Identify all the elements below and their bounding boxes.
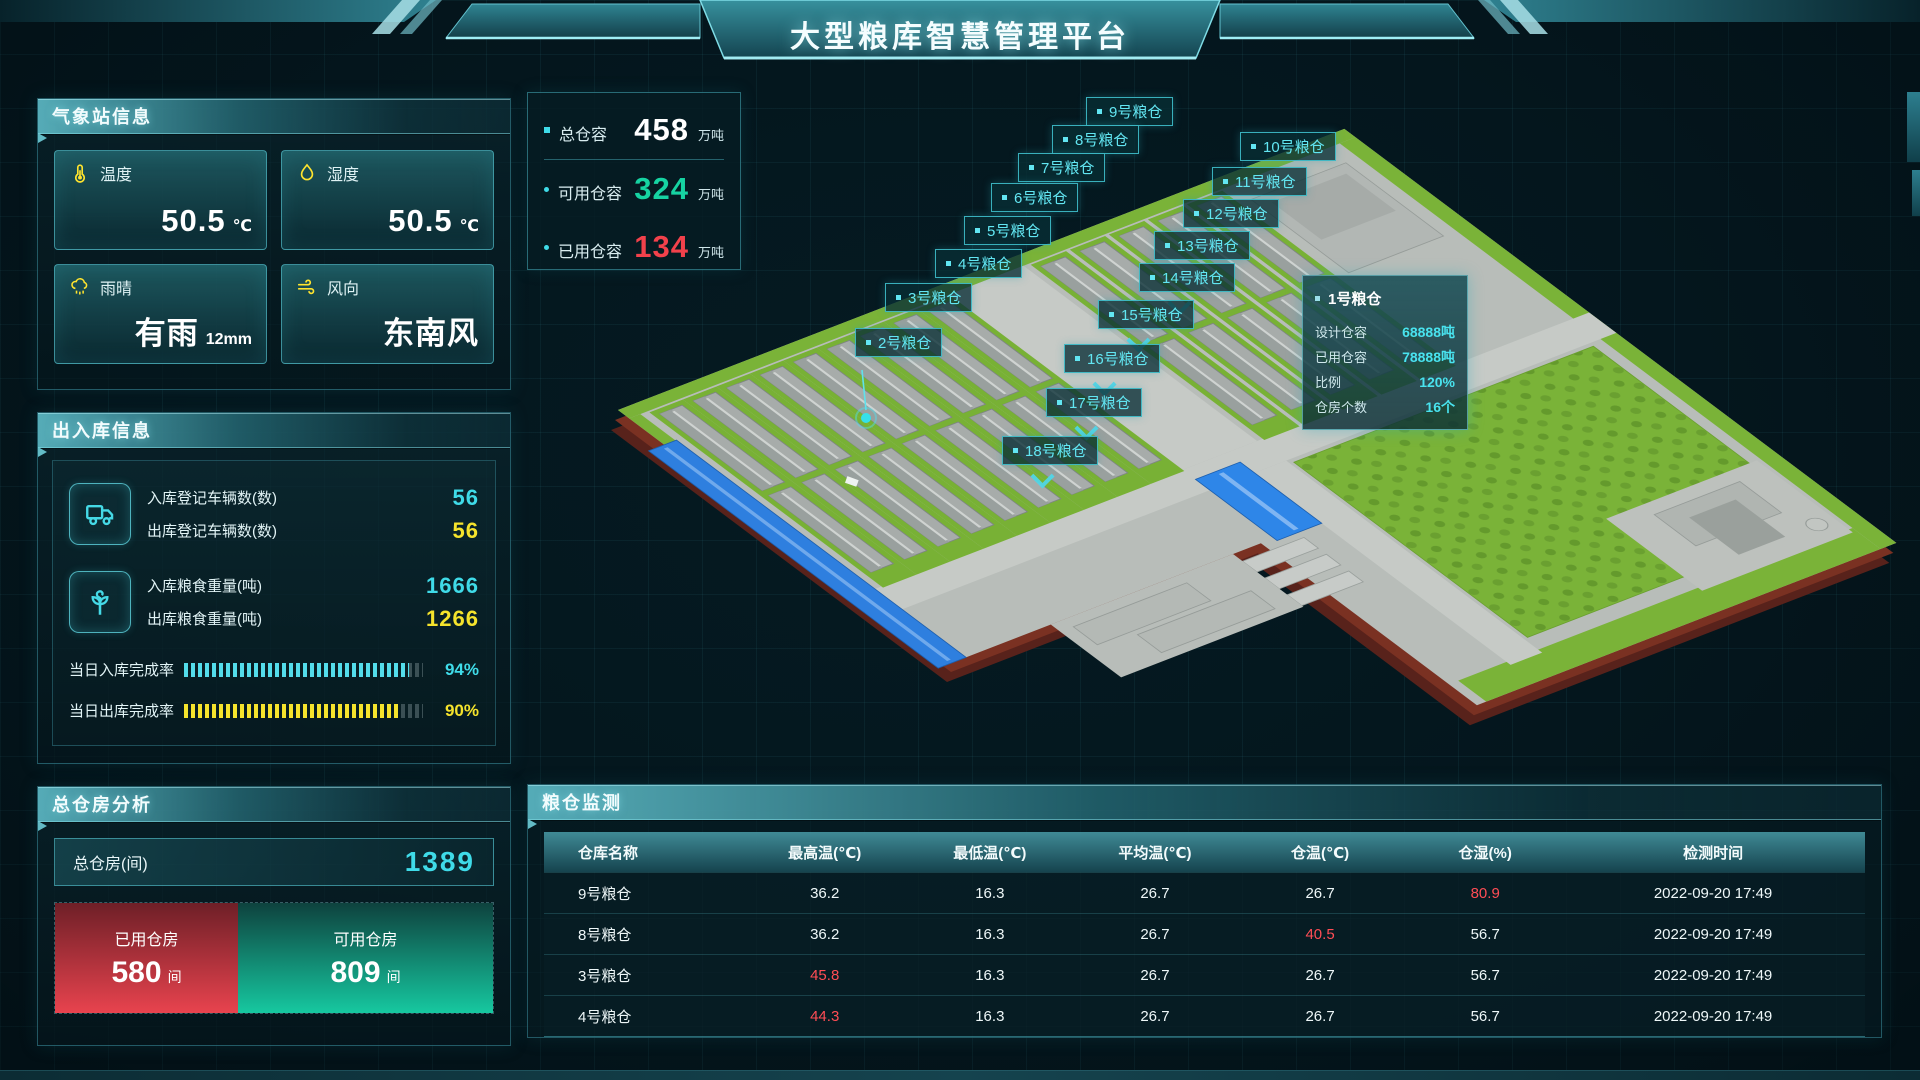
inout-rows: 入库登记车辆数(数) 56 出库登记车辆数(数) 56	[147, 484, 479, 544]
map-label-15号粮仓[interactable]: 15号粮仓	[1098, 300, 1194, 329]
monitor-cell: 16.3	[907, 926, 1072, 943]
tooltip-row-label: 已用仓容	[1315, 347, 1367, 366]
bullet-icon	[946, 261, 951, 266]
weather-card-value: 东南风	[383, 308, 479, 353]
monitor-col-header: 最低温(℃)	[907, 842, 1072, 863]
monitor-cell: 40.5	[1238, 926, 1403, 943]
capacity-label: 总仓容	[559, 121, 607, 145]
total-rooms-label: 总仓房(间)	[73, 850, 148, 874]
weather-panel: 气象站信息 温度 50.5℃湿度 50.5℃雨晴 有雨12mm风向 东南风	[37, 98, 511, 390]
capacity-unit: 万吨	[698, 242, 724, 261]
map-label-10号粮仓[interactable]: 10号粮仓	[1240, 132, 1336, 161]
weather-card-风向: 风向 东南风	[281, 264, 494, 364]
monitor-panel-title: 粮仓监测	[542, 789, 622, 815]
map-label-17号粮仓[interactable]: 17号粮仓	[1046, 388, 1142, 417]
monitor-cell: 45.8	[742, 967, 907, 984]
wind-icon	[296, 276, 318, 298]
inout-row-value: 1266	[426, 606, 479, 632]
available-rooms-segment: 可用仓房 809间	[238, 903, 493, 1013]
completion-rate-row: 当日出库完成率 90%	[69, 700, 479, 721]
capacity-value: 134	[634, 229, 689, 265]
bullet-icon	[1315, 296, 1320, 301]
monitor-cell: 80.9	[1403, 885, 1568, 902]
sprout-icon-box	[69, 571, 131, 633]
completion-rate-label: 当日出库完成率	[69, 700, 174, 721]
map-label-4号粮仓[interactable]: 4号粮仓	[935, 249, 1022, 278]
monitor-cell: 56.7	[1403, 1008, 1568, 1025]
weather-card-head: 风向	[296, 275, 479, 299]
weather-panel-header: 气象站信息	[38, 99, 510, 134]
monitor-cell: 4号粮仓	[544, 1006, 742, 1027]
map-label-text: 18号粮仓	[1025, 440, 1087, 461]
inout-row-label: 出库登记车辆数(数)	[147, 520, 277, 541]
bullet-icon	[1029, 165, 1034, 170]
completion-rate-label: 当日入库完成率	[69, 659, 174, 680]
capacity-panel: 总仓容 458 万吨 可用仓容 324 万吨 已用仓容 134 万吨	[527, 92, 741, 270]
rain-icon	[69, 276, 91, 298]
monitor-cell: 2022-09-20 17:49	[1568, 926, 1859, 943]
map-label-text: 6号粮仓	[1014, 187, 1067, 208]
map-label-text: 17号粮仓	[1069, 392, 1131, 413]
map-label-text: 8号粮仓	[1075, 129, 1128, 150]
total-rooms-strip: 总仓房(间) 1389	[54, 838, 494, 886]
map-label-8号粮仓[interactable]: 8号粮仓	[1052, 125, 1139, 154]
inout-panel: 出入库信息 入库登记车辆数(数) 56 出库登记车辆数(数) 56 入库粮食重量…	[37, 412, 511, 764]
capacity-label: 可用仓容	[558, 180, 622, 204]
bullet-icon	[1075, 356, 1080, 361]
tooltip-row: 仓房个数 16个	[1315, 394, 1455, 419]
weather-card-head: 雨晴	[69, 275, 252, 299]
bullet-icon	[1013, 448, 1018, 453]
completion-rate-row: 当日入库完成率 94%	[69, 659, 479, 680]
map-label-14号粮仓[interactable]: 14号粮仓	[1139, 263, 1235, 292]
monitor-table-row: 9号粮仓36.216.326.726.780.92022-09-20 17:49	[544, 872, 1865, 913]
inout-panel-header: 出入库信息	[38, 413, 510, 448]
tooltip-row: 设计仓容 68888吨	[1315, 319, 1455, 344]
weather-card-label: 湿度	[327, 161, 359, 185]
monitor-table: 仓库名称最高温(℃)最低温(℃)平均温(℃)仓温(℃)仓湿(%)检测时间 9号粮…	[544, 832, 1865, 1037]
monitor-cell: 44.3	[742, 1008, 907, 1025]
tooltip-row-value: 78888吨	[1402, 347, 1455, 367]
monitor-table-row: 4号粮仓44.316.326.726.756.72022-09-20 17:49	[544, 995, 1865, 1036]
map-label-16号粮仓[interactable]: 16号粮仓	[1064, 344, 1160, 373]
bullet-icon	[896, 295, 901, 300]
completion-rate-bar	[184, 704, 423, 718]
map-label-text: 4号粮仓	[958, 253, 1011, 274]
weather-panel-title: 气象站信息	[52, 103, 152, 129]
warehouse-tooltip: 1号粮仓 设计仓容 68888吨 已用仓容 78888吨 比例 120% 仓房个…	[1302, 275, 1468, 430]
inout-group: 入库粮食重量(吨) 1666 出库粮食重量(吨) 1266	[69, 571, 479, 633]
inout-row-value: 56	[453, 518, 479, 544]
completion-rate-value: 90%	[433, 701, 479, 721]
completion-rate-fill	[184, 663, 409, 677]
inout-row: 入库粮食重量(吨) 1666	[147, 572, 479, 599]
rooms-split-bar: 已用仓房 580间 可用仓房 809间	[54, 902, 494, 1014]
humidity-icon	[296, 162, 318, 184]
total-rooms-value: 1389	[405, 846, 475, 878]
tooltip-row-label: 比例	[1315, 372, 1341, 391]
monitor-cell: 36.2	[742, 926, 907, 943]
used-rooms-label: 已用仓房	[115, 926, 179, 950]
monitor-cell: 26.7	[1072, 1008, 1237, 1025]
weather-card-value: 有雨12mm	[135, 308, 252, 353]
available-rooms-unit: 间	[387, 969, 401, 985]
weather-card-雨晴: 雨晴 有雨12mm	[54, 264, 267, 364]
bullet-icon	[544, 245, 549, 250]
monitor-col-header: 检测时间	[1568, 842, 1859, 863]
weather-card-head: 温度	[69, 161, 252, 185]
bullet-icon	[866, 340, 871, 345]
bullet-icon	[1063, 137, 1068, 142]
map-label-text: 12号粮仓	[1206, 203, 1268, 224]
map-label-3号粮仓[interactable]: 3号粮仓	[885, 283, 972, 312]
map-label-13号粮仓[interactable]: 13号粮仓	[1154, 231, 1250, 260]
inout-row-value: 1666	[426, 573, 479, 599]
monitor-cell: 16.3	[907, 967, 1072, 984]
bullet-icon	[1057, 400, 1062, 405]
tooltip-row-value: 68888吨	[1402, 322, 1455, 342]
monitor-cell: 36.2	[742, 885, 907, 902]
bullet-icon	[1150, 275, 1155, 280]
bullet-icon	[544, 127, 550, 133]
inout-group: 入库登记车辆数(数) 56 出库登记车辆数(数) 56	[69, 483, 479, 545]
inout-row-label: 入库登记车辆数(数)	[147, 487, 277, 508]
monitor-cell: 26.7	[1238, 967, 1403, 984]
monitor-cell: 26.7	[1072, 885, 1237, 902]
weather-card-label: 风向	[327, 275, 359, 299]
map-label-7号粮仓[interactable]: 7号粮仓	[1018, 153, 1105, 182]
inout-row: 入库登记车辆数(数) 56	[147, 484, 479, 511]
completion-rate-value: 94%	[433, 660, 479, 680]
edge-decor-bar	[1907, 92, 1920, 162]
analysis-panel-title: 总仓房分析	[52, 791, 152, 817]
monitor-cell: 16.3	[907, 885, 1072, 902]
map-label-text: 5号粮仓	[987, 220, 1040, 241]
weather-card-grid: 温度 50.5℃湿度 50.5℃雨晴 有雨12mm风向 东南风	[38, 134, 510, 380]
map-label-2号粮仓[interactable]: 2号粮仓	[855, 328, 942, 357]
monitor-cell: 26.7	[1072, 926, 1237, 943]
weather-card-湿度: 湿度 50.5℃	[281, 150, 494, 250]
map-label-text: 7号粮仓	[1041, 157, 1094, 178]
map-label-text: 14号粮仓	[1162, 267, 1224, 288]
page-header: 大型粮库智慧管理平台	[0, 0, 1920, 70]
completion-rate-bar	[184, 663, 423, 677]
bullet-icon	[1251, 144, 1256, 149]
edge-decor-bar	[1912, 170, 1920, 216]
monitor-cell: 8号粮仓	[544, 924, 742, 945]
used-rooms-value: 580	[112, 956, 162, 989]
bullet-icon	[1097, 109, 1102, 114]
map-label-text: 13号粮仓	[1177, 235, 1239, 256]
bullet-icon	[975, 228, 980, 233]
monitor-cell: 26.7	[1238, 1008, 1403, 1025]
map-label-9号粮仓[interactable]: 9号粮仓	[1086, 97, 1173, 126]
weather-card-温度: 温度 50.5℃	[54, 150, 267, 250]
completion-rate-fill	[184, 704, 399, 718]
bullet-icon	[1223, 179, 1228, 184]
page-title: 大型粮库智慧管理平台	[0, 12, 1920, 56]
monitor-col-header: 平均温(℃)	[1072, 842, 1237, 863]
capacity-value: 458	[634, 112, 689, 148]
tooltip-row: 比例 120%	[1315, 369, 1455, 394]
capacity-item-已用仓容: 已用仓容 134 万吨	[544, 218, 724, 276]
bullet-icon	[1002, 195, 1007, 200]
tooltip-row-value: 120%	[1419, 374, 1455, 390]
tooltip-title: 1号粮仓	[1315, 288, 1455, 309]
monitor-cell: 26.7	[1238, 885, 1403, 902]
monitor-cell: 56.7	[1403, 967, 1568, 984]
monitor-cell: 2022-09-20 17:49	[1568, 885, 1859, 902]
truck-icon	[83, 497, 117, 531]
monitor-cell: 56.7	[1403, 926, 1568, 943]
map-label-text: 2号粮仓	[878, 332, 931, 353]
map-label-text: 9号粮仓	[1109, 101, 1162, 122]
map-label-5号粮仓[interactable]: 5号粮仓	[964, 216, 1051, 245]
monitor-cell: 3号粮仓	[544, 965, 742, 986]
map-label-text: 10号粮仓	[1263, 136, 1325, 157]
thermometer-icon	[69, 162, 91, 184]
inout-row: 出库登记车辆数(数) 56	[147, 517, 479, 544]
weather-card-label: 雨晴	[100, 275, 132, 299]
monitor-col-header: 最高温(℃)	[742, 842, 907, 863]
bullet-icon	[1109, 312, 1114, 317]
monitor-col-header: 仓湿(%)	[1403, 842, 1568, 863]
monitor-table-body: 9号粮仓36.216.326.726.780.92022-09-20 17:49…	[544, 872, 1865, 1037]
tooltip-row-label: 设计仓容	[1315, 322, 1367, 341]
weather-card-value: 50.5℃	[388, 203, 479, 239]
monitor-cell: 2022-09-20 17:49	[1568, 1008, 1859, 1025]
capacity-unit: 万吨	[698, 184, 724, 203]
used-rooms-unit: 间	[168, 969, 182, 985]
map-label-6号粮仓[interactable]: 6号粮仓	[991, 183, 1078, 212]
map-label-text: 11号粮仓	[1235, 171, 1296, 192]
inout-row-label: 入库粮食重量(吨)	[147, 575, 262, 596]
monitor-cell: 16.3	[907, 1008, 1072, 1025]
inout-panel-title: 出入库信息	[52, 417, 152, 443]
weather-card-label: 温度	[100, 161, 132, 185]
map-label-11号粮仓[interactable]: 11号粮仓	[1212, 167, 1307, 196]
bullet-icon	[544, 187, 549, 192]
monitor-col-header: 仓库名称	[544, 842, 742, 863]
bullet-icon	[1194, 211, 1199, 216]
capacity-item-可用仓容: 可用仓容 324 万吨	[544, 160, 724, 218]
map-label-text: 15号粮仓	[1121, 304, 1183, 325]
weather-card-value: 50.5℃	[161, 203, 252, 239]
capacity-unit: 万吨	[698, 125, 724, 144]
tooltip-row-value: 16个	[1425, 397, 1455, 417]
monitor-col-header: 仓温(℃)	[1238, 842, 1403, 863]
tooltip-row: 已用仓容 78888吨	[1315, 344, 1455, 369]
capacity-value: 324	[634, 171, 689, 207]
inout-row-label: 出库粮食重量(吨)	[147, 608, 262, 629]
available-rooms-label: 可用仓房	[334, 926, 398, 950]
capacity-item-总仓容: 总仓容 458 万吨	[544, 101, 724, 160]
map-label-18号粮仓[interactable]: 18号粮仓	[1002, 436, 1098, 465]
inout-panel-body: 入库登记车辆数(数) 56 出库登记车辆数(数) 56 入库粮食重量(吨) 16…	[52, 460, 496, 746]
bullet-icon	[1165, 243, 1170, 248]
monitor-table-row: 8号粮仓36.216.326.740.556.72022-09-20 17:49	[544, 913, 1865, 954]
bottom-decor-strip	[0, 1070, 1920, 1080]
map-label-text: 3号粮仓	[908, 287, 961, 308]
weather-card-head: 湿度	[296, 161, 479, 185]
sprout-icon	[83, 585, 117, 619]
monitor-cell: 26.7	[1072, 967, 1237, 984]
analysis-panel: 总仓房分析 总仓房(间) 1389 已用仓房 580间 可用仓房 809间	[37, 786, 511, 1046]
monitor-cell: 9号粮仓	[544, 883, 742, 904]
analysis-panel-header: 总仓房分析	[38, 787, 510, 822]
tooltip-row-label: 仓房个数	[1315, 397, 1367, 416]
inout-rows: 入库粮食重量(吨) 1666 出库粮食重量(吨) 1266	[147, 572, 479, 632]
inout-row: 出库粮食重量(吨) 1266	[147, 605, 479, 632]
available-rooms-value: 809	[331, 956, 381, 989]
monitor-panel-header: 粮仓监测	[528, 785, 1881, 820]
monitor-table-header: 仓库名称最高温(℃)最低温(℃)平均温(℃)仓温(℃)仓湿(%)检测时间	[544, 832, 1865, 872]
monitor-table-row: 3号粮仓45.816.326.726.756.72022-09-20 17:49	[544, 954, 1865, 995]
map-label-12号粮仓[interactable]: 12号粮仓	[1183, 199, 1279, 228]
truck-icon-box	[69, 483, 131, 545]
inout-row-value: 56	[453, 485, 479, 511]
monitor-cell: 2022-09-20 17:49	[1568, 967, 1859, 984]
used-rooms-segment: 已用仓房 580间	[55, 903, 238, 1013]
map-label-text: 16号粮仓	[1087, 348, 1149, 369]
monitor-panel: 粮仓监测 仓库名称最高温(℃)最低温(℃)平均温(℃)仓温(℃)仓湿(%)检测时…	[527, 784, 1882, 1038]
capacity-label: 已用仓容	[558, 238, 622, 262]
